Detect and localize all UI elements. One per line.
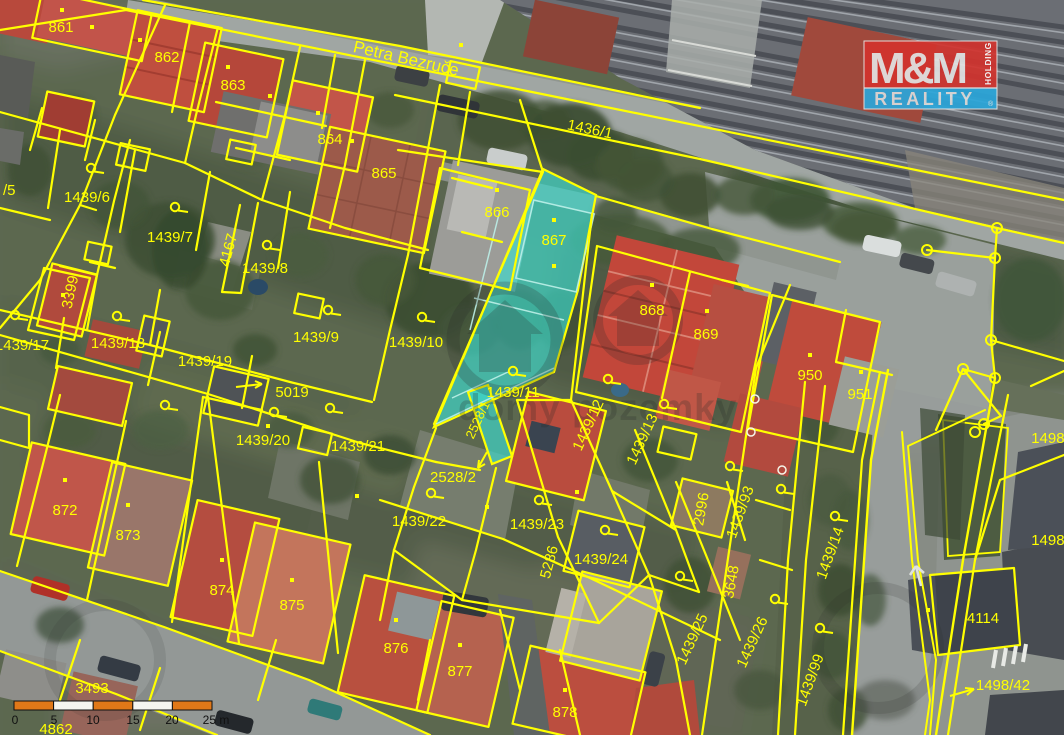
svg-text:877: 877 <box>447 663 472 680</box>
svg-text:867: 867 <box>541 232 566 249</box>
svg-text:875: 875 <box>279 597 304 614</box>
svg-text:5019: 5019 <box>275 384 308 401</box>
svg-text:878: 878 <box>552 704 577 721</box>
svg-text:874: 874 <box>209 582 234 599</box>
svg-text:950: 950 <box>797 367 822 384</box>
svg-text:1439/19: 1439/19 <box>178 353 232 370</box>
svg-text:25 m: 25 m <box>203 713 230 727</box>
svg-text:868: 868 <box>639 302 664 319</box>
svg-text:1439/22: 1439/22 <box>392 513 446 530</box>
svg-text:REALITY: REALITY <box>874 89 976 109</box>
svg-text:/5: /5 <box>3 182 16 199</box>
svg-text:1439/18: 1439/18 <box>91 335 145 352</box>
svg-text:1439/6: 1439/6 <box>64 189 110 206</box>
svg-text:1439/20: 1439/20 <box>236 432 290 449</box>
svg-text:1439/9: 1439/9 <box>293 329 339 346</box>
svg-text:873: 873 <box>115 527 140 544</box>
svg-text:863: 863 <box>220 77 245 94</box>
svg-text:3493: 3493 <box>75 680 108 697</box>
svg-text:5: 5 <box>51 713 58 727</box>
svg-text:862: 862 <box>154 49 179 66</box>
svg-text:869: 869 <box>693 326 718 343</box>
svg-text:1439/10: 1439/10 <box>389 334 443 351</box>
svg-text:865: 865 <box>371 165 396 182</box>
svg-text:1439/7: 1439/7 <box>147 229 193 246</box>
svg-text:10: 10 <box>86 713 100 727</box>
svg-text:1439/21: 1439/21 <box>331 438 385 455</box>
svg-text:951: 951 <box>847 386 872 403</box>
svg-text:1439/11: 1439/11 <box>486 384 539 401</box>
svg-text:1439/17: 1439/17 <box>0 337 49 354</box>
svg-text:2528/2: 2528/2 <box>430 469 476 486</box>
svg-text:20: 20 <box>165 713 179 727</box>
svg-text:1439/24: 1439/24 <box>574 551 628 568</box>
svg-text:876: 876 <box>383 640 408 657</box>
svg-text:®: ® <box>988 100 994 108</box>
svg-text:872: 872 <box>52 502 77 519</box>
svg-text:1498/: 1498/ <box>1031 532 1064 549</box>
svg-text:861: 861 <box>48 19 73 36</box>
svg-text:4114: 4114 <box>967 610 999 627</box>
svg-text:M&M: M&M <box>869 44 965 93</box>
svg-text:1439/23: 1439/23 <box>510 516 564 533</box>
svg-text:864: 864 <box>317 131 342 148</box>
svg-text:1498/42: 1498/42 <box>976 677 1030 694</box>
svg-text:1498/: 1498/ <box>1031 430 1064 447</box>
svg-text:0: 0 <box>12 713 19 727</box>
svg-text:1439/8: 1439/8 <box>242 260 288 277</box>
svg-text:HOLDING: HOLDING <box>983 42 993 85</box>
svg-text:866: 866 <box>484 204 509 221</box>
svg-text:15: 15 <box>126 713 140 727</box>
